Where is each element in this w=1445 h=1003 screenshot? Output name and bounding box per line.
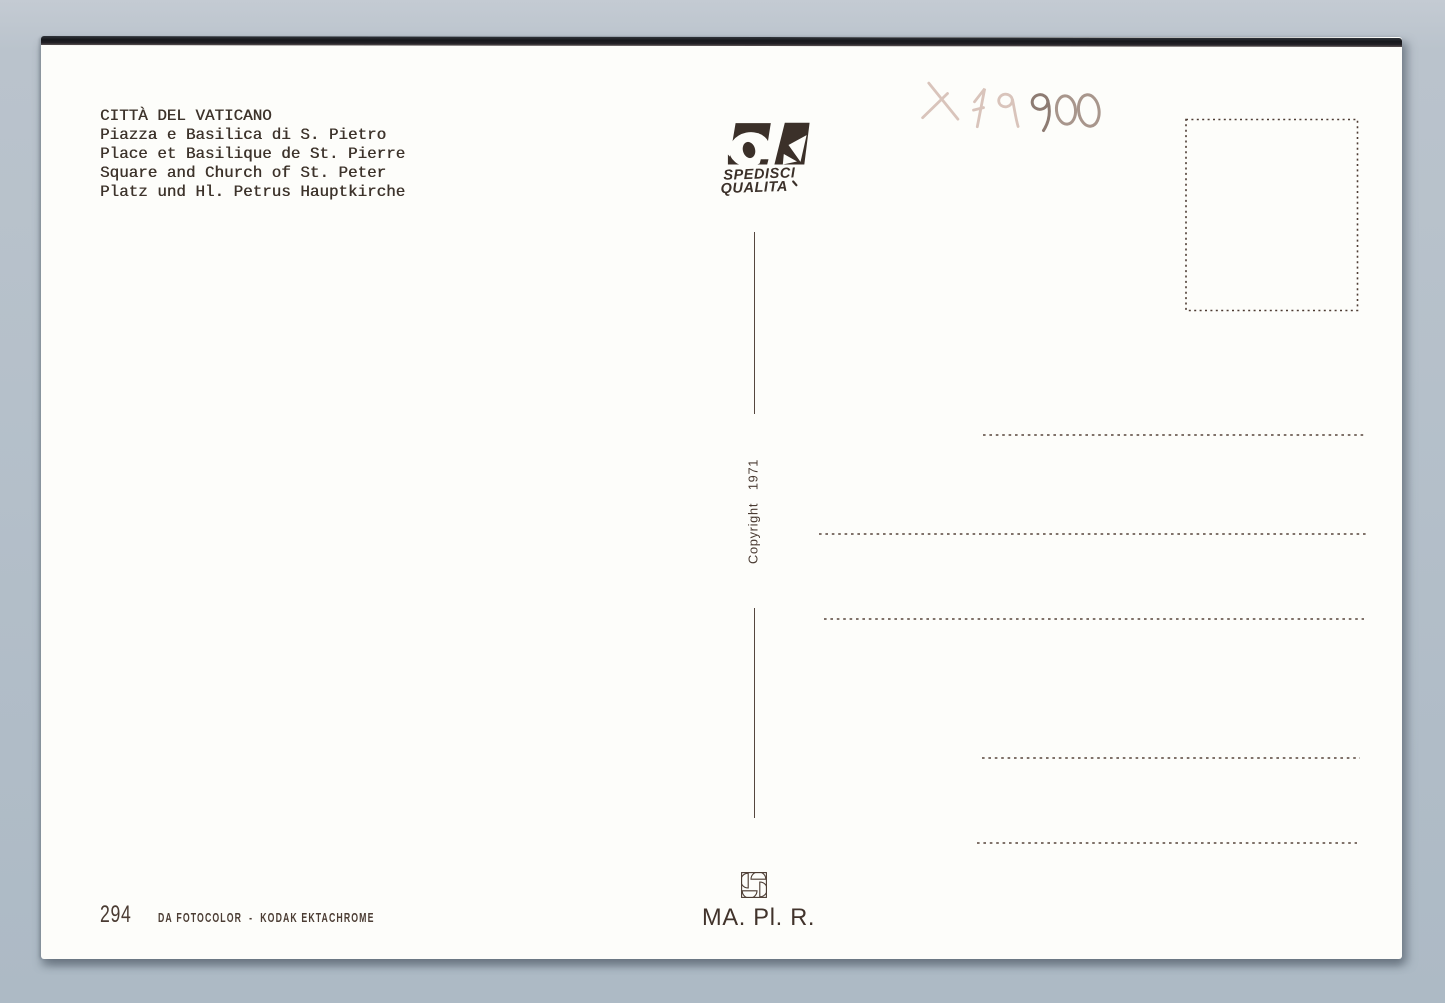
svg-text:Copyright 1971: Copyright 1971 [746, 459, 761, 564]
svg-text:QUALITA: QUALITA [720, 179, 788, 197]
